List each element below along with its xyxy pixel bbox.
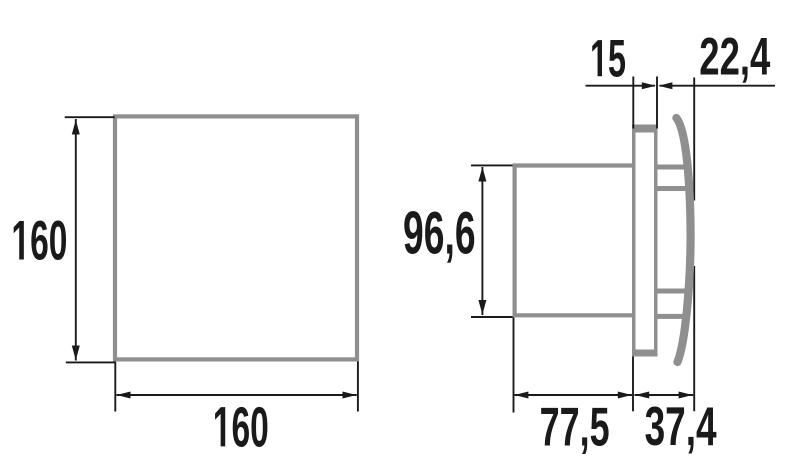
- svg-text:96,6: 96,6: [403, 198, 476, 266]
- svg-text:37,4: 37,4: [645, 396, 717, 457]
- svg-text:77,5: 77,5: [540, 395, 610, 457]
- svg-text:5: 5: [608, 29, 626, 88]
- svg-text:60: 60: [231, 395, 268, 459]
- svg-text:60: 60: [30, 209, 67, 272]
- svg-text:22,4: 22,4: [699, 28, 770, 87]
